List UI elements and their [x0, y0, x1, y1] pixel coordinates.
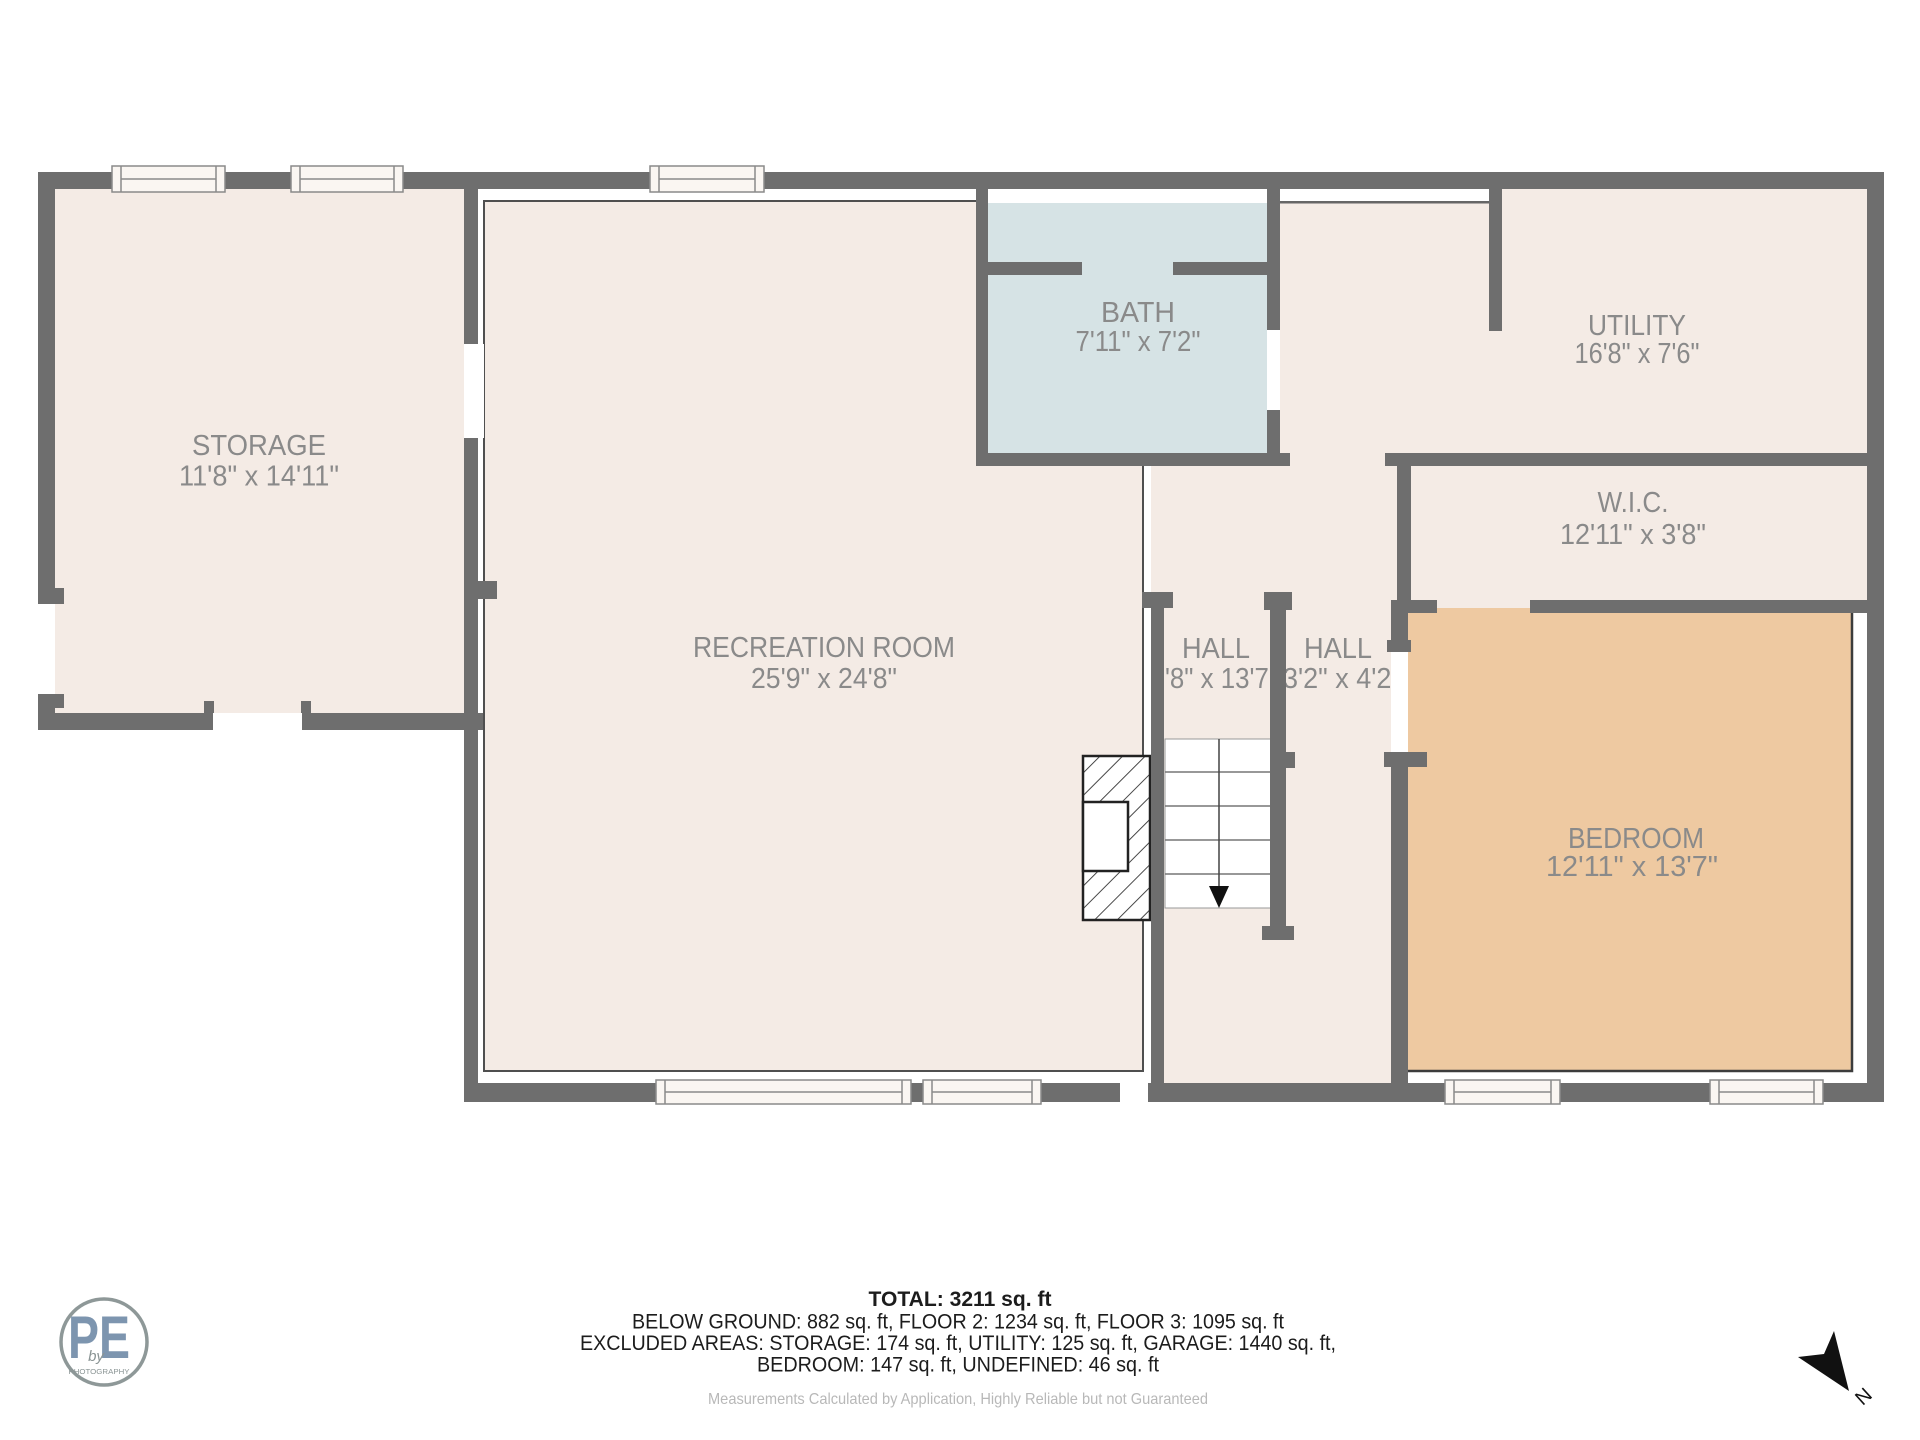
- svg-text:Measurements Calculated by App: Measurements Calculated by Application, …: [708, 1391, 1208, 1408]
- svg-text:3'2" x 4'2": 3'2" x 4'2": [1283, 663, 1401, 695]
- svg-text:PHOTOGRAPHY: PHOTOGRAPHY: [69, 1367, 130, 1376]
- svg-text:EXCLUDED AREAS: STORAGE: 174 s: EXCLUDED AREAS: STORAGE: 174 sq. ft, UTI…: [580, 1332, 1336, 1355]
- svg-text:STORAGE: STORAGE: [192, 430, 326, 462]
- svg-text:7'11" x 7'2": 7'11" x 7'2": [1076, 326, 1201, 358]
- svg-text:16'8" x 7'6": 16'8" x 7'6": [1575, 338, 1700, 370]
- svg-text:12'11" x 3'8": 12'11" x 3'8": [1560, 519, 1706, 551]
- svg-text:11'8" x 14'11": 11'8" x 14'11": [179, 461, 339, 493]
- svg-text:BEDROOM: 147 sq. ft, UNDEFINED: BEDROOM: 147 sq. ft, UNDEFINED: 46 sq. f…: [757, 1354, 1159, 1377]
- svg-text:HALL: HALL: [1304, 633, 1372, 665]
- svg-text:TOTAL: 3211 sq. ft: TOTAL: 3211 sq. ft: [869, 1288, 1052, 1311]
- svg-text:N: N: [1851, 1384, 1876, 1410]
- svg-text:by: by: [88, 1348, 105, 1365]
- svg-text:BELOW GROUND: 882 sq. ft, FLOO: BELOW GROUND: 882 sq. ft, FLOOR 2: 1234 …: [632, 1311, 1284, 1334]
- svg-text:BATH: BATH: [1101, 297, 1175, 329]
- svg-text:'8" x 13'7": '8" x 13'7": [1165, 663, 1278, 695]
- svg-text:HALL: HALL: [1182, 633, 1250, 665]
- svg-text:12'11" x 13'7": 12'11" x 13'7": [1546, 851, 1718, 883]
- svg-text:25'9" x 24'8": 25'9" x 24'8": [751, 663, 897, 695]
- svg-text:W.I.C.: W.I.C.: [1598, 487, 1669, 519]
- svg-text:RECREATION ROOM: RECREATION ROOM: [693, 632, 955, 664]
